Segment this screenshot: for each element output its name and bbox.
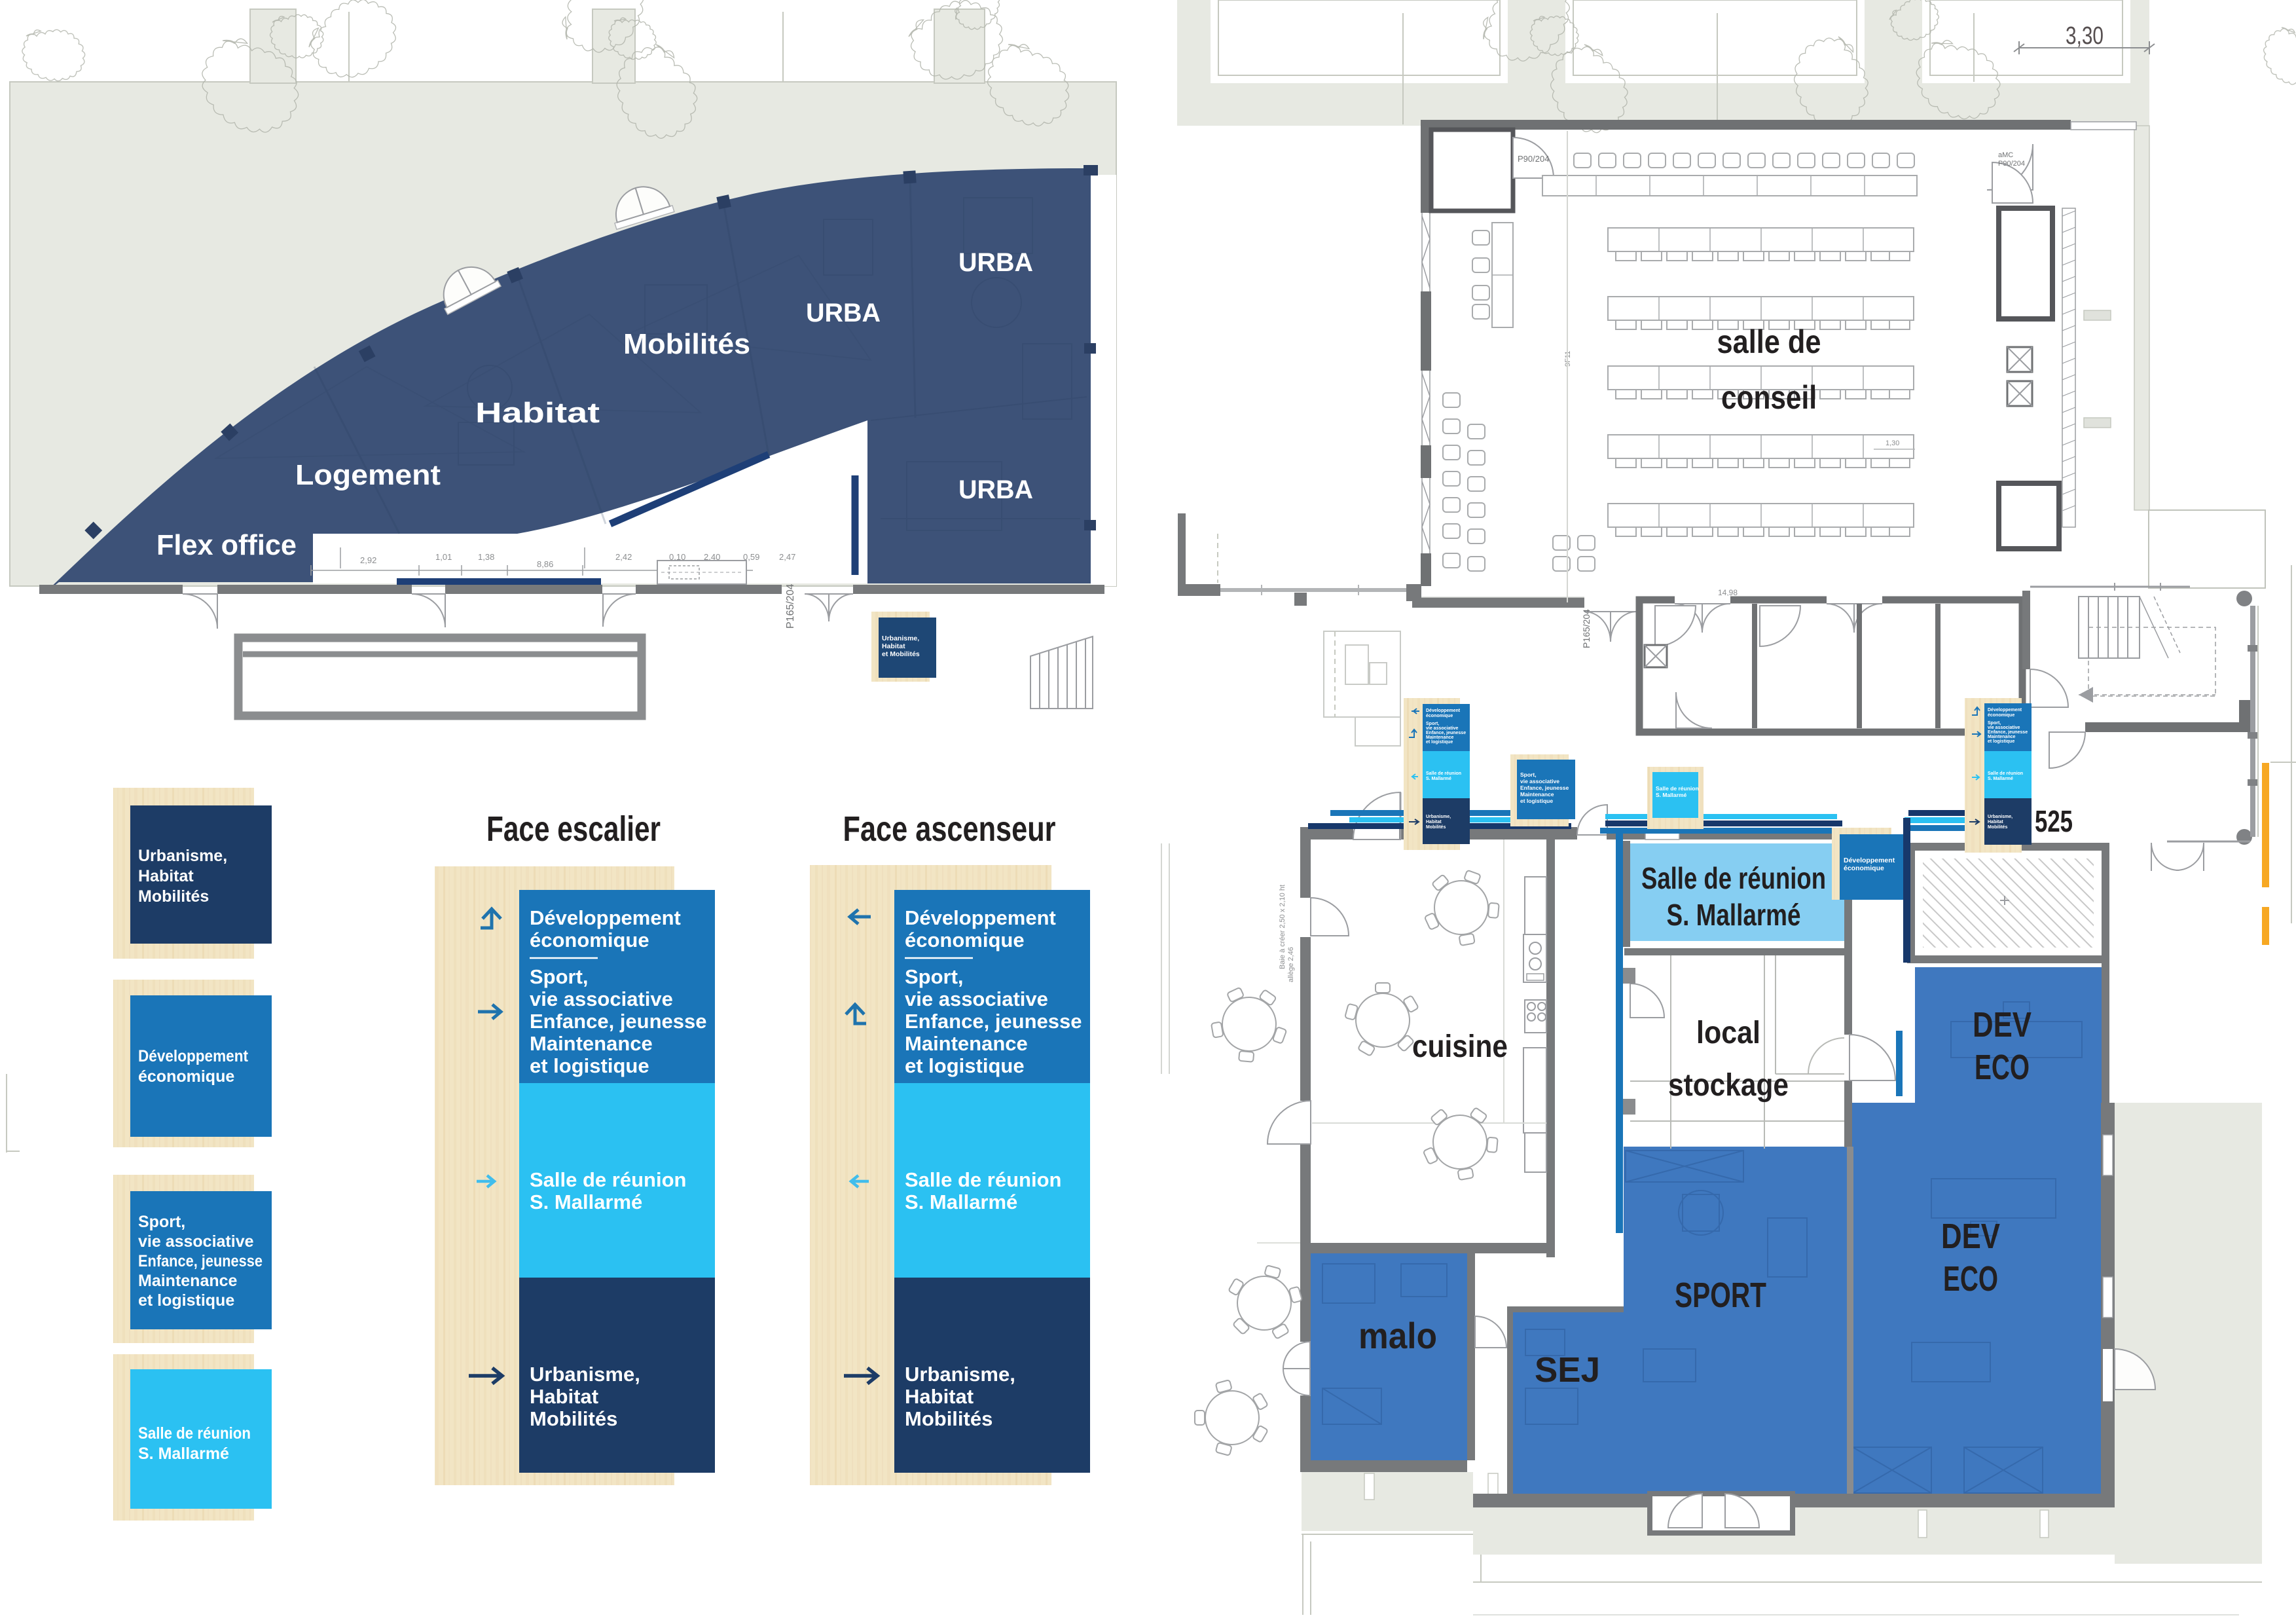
svg-text:économique: économique (138, 1067, 234, 1086)
svg-text:local: local (1696, 1016, 1760, 1050)
svg-text:économique: économique (1844, 864, 1884, 872)
svg-text:vie associative: vie associative (1988, 726, 2020, 730)
svg-text:ECO: ECO (1943, 1259, 1998, 1299)
svg-text:Sport,: Sport, (905, 965, 964, 988)
svg-text:Salle de réunion: Salle de réunion (1988, 771, 2023, 776)
svg-text:Flex office: Flex office (156, 529, 297, 561)
svg-text:et Mobilités: et Mobilités (882, 650, 920, 658)
svg-text:Développement: Développement (1988, 708, 2022, 712)
svg-text:S. Mallarmé: S. Mallarmé (1988, 777, 2013, 781)
svg-text:Enfance, jeunesse: Enfance, jeunesse (905, 1010, 1082, 1033)
svg-text:Sport,: Sport, (530, 965, 589, 988)
svg-text:P90/204: P90/204 (1998, 160, 2025, 168)
svg-text:URBA: URBA (958, 248, 1033, 277)
svg-text:S. Mallarmé: S. Mallarmé (905, 1190, 1017, 1213)
svg-text:Sport,: Sport, (1426, 722, 1439, 726)
svg-text:vie associative: vie associative (138, 1232, 254, 1251)
svg-text:Baie à créer 2,50 x 2,10 ht: Baie à créer 2,50 x 2,10 ht (1279, 885, 1286, 969)
svg-text:Salle de réunion: Salle de réunion (530, 1168, 686, 1191)
svg-text:Habitat: Habitat (1426, 820, 1442, 824)
svg-text:malo: malo (1358, 1315, 1437, 1356)
svg-text:Maintenance: Maintenance (905, 1032, 1028, 1055)
svg-text:Salle de réunion: Salle de réunion (1656, 785, 1699, 792)
svg-text:et logistique: et logistique (1426, 740, 1453, 745)
svg-text:1,30: 1,30 (1886, 439, 1899, 447)
svg-text:P90/204: P90/204 (1518, 154, 1549, 164)
svg-text:525: 525 (2035, 804, 2073, 838)
svg-text:Salle de réunion: Salle de réunion (138, 1424, 251, 1443)
svg-text:2,42: 2,42 (615, 552, 632, 562)
svg-text:Sport,: Sport, (138, 1213, 185, 1231)
svg-text:Développement: Développement (1844, 857, 1895, 864)
svg-text:Habitat: Habitat (475, 397, 600, 429)
svg-text:Habitat: Habitat (882, 642, 905, 650)
svg-text:économique: économique (1988, 713, 2014, 718)
svg-text:Enfance, jeunesse: Enfance, jeunesse (1426, 731, 1466, 735)
svg-text:Maintenance: Maintenance (1988, 735, 2016, 739)
svg-text:et logistique: et logistique (1520, 798, 1553, 804)
svg-text:Mobilités: Mobilités (905, 1407, 993, 1430)
svg-text:P165/204: P165/204 (1581, 609, 1592, 648)
svg-text:Habitat: Habitat (1988, 820, 2003, 824)
svg-text:Développement: Développement (1426, 709, 1461, 713)
svg-text:Développement: Développement (530, 906, 681, 929)
svg-text:Face ascenseur: Face ascenseur (843, 809, 1056, 849)
svg-text:Enfance, jeunesse: Enfance, jeunesse (1520, 784, 1569, 791)
svg-text:Maintenance: Maintenance (1520, 791, 1554, 798)
svg-text:conseil: conseil (1721, 379, 1817, 416)
svg-text:vie associative: vie associative (905, 987, 1048, 1010)
svg-text:et logistique: et logistique (905, 1054, 1025, 1077)
svg-text:S. Mallarmé: S. Mallarmé (1426, 777, 1451, 781)
svg-text:Urbanisme,: Urbanisme, (530, 1363, 640, 1386)
svg-text:Salle de réunion: Salle de réunion (1641, 861, 1826, 895)
svg-text:Mobilités: Mobilités (623, 328, 750, 360)
svg-text:stockage: stockage (1668, 1068, 1789, 1103)
svg-text:Salle de réunion: Salle de réunion (1426, 771, 1461, 776)
svg-text:14,98: 14,98 (1718, 588, 1738, 597)
svg-text:économique: économique (905, 929, 1025, 951)
svg-text:Maintenance: Maintenance (530, 1032, 653, 1055)
svg-text:8,86: 8,86 (537, 559, 553, 569)
svg-text:Sport,: Sport, (1520, 771, 1537, 778)
svg-text:Salle de réunion: Salle de réunion (905, 1168, 1061, 1191)
svg-text:Développement: Développement (138, 1047, 249, 1065)
svg-text:Face escalier: Face escalier (486, 809, 661, 849)
svg-text:3,30: 3,30 (2066, 22, 2104, 50)
svg-text:Mobilités: Mobilités (1988, 825, 2007, 830)
svg-text:2,92: 2,92 (360, 555, 376, 565)
svg-text:1,38: 1,38 (478, 552, 494, 562)
svg-text:Logement: Logement (295, 459, 441, 491)
svg-text:SEJ: SEJ (1535, 1350, 1600, 1390)
svg-text:Maintenance: Maintenance (138, 1272, 238, 1290)
svg-text:Urbanisme,: Urbanisme, (1426, 815, 1451, 819)
svg-text:Habitat: Habitat (530, 1385, 598, 1408)
svg-text:Habitat: Habitat (138, 867, 194, 885)
svg-text:économique: économique (530, 929, 649, 951)
svg-text:S. Mallarmé: S. Mallarmé (1667, 898, 1801, 932)
svg-text:et logistique: et logistique (138, 1291, 234, 1310)
svg-text:Habitat: Habitat (905, 1385, 974, 1408)
svg-text:vie associative: vie associative (530, 987, 673, 1010)
svg-text:Développement: Développement (905, 906, 1056, 929)
svg-text:Urbanisme,: Urbanisme, (905, 1363, 1015, 1386)
svg-text:vie associative: vie associative (1426, 726, 1459, 731)
svg-text:Enfance, jeunesse: Enfance, jeunesse (1988, 730, 2028, 735)
svg-text:Maintenance: Maintenance (1426, 735, 1454, 740)
svg-text:salle de: salle de (1717, 323, 1821, 360)
svg-text:Urbanisme,: Urbanisme, (138, 847, 227, 865)
svg-text:1,01: 1,01 (435, 552, 452, 562)
svg-text:cuisine: cuisine (1412, 1029, 1508, 1064)
svg-text:S. Mallarmé: S. Mallarmé (138, 1445, 229, 1463)
svg-text:URBA: URBA (958, 475, 1033, 504)
svg-text:P165/204: P165/204 (785, 583, 796, 629)
svg-text:S. Mallarmé: S. Mallarmé (530, 1190, 642, 1213)
svg-text:allège 2,46: allège 2,46 (1287, 947, 1295, 982)
svg-text:DEV: DEV (1973, 1005, 2032, 1044)
svg-text:Enfance, jeunesse: Enfance, jeunesse (138, 1252, 263, 1270)
svg-text:SPORT: SPORT (1675, 1276, 1766, 1315)
svg-text:2,47: 2,47 (779, 552, 795, 562)
svg-text:Urbanisme,: Urbanisme, (1988, 815, 2013, 819)
svg-text:ECO: ECO (1975, 1048, 2030, 1087)
svg-text:Urbanisme,: Urbanisme, (882, 635, 919, 642)
svg-text:Sport,: Sport, (1988, 721, 2001, 726)
svg-text:aMC: aMC (1998, 151, 2013, 159)
svg-text:vie associative: vie associative (1520, 778, 1559, 784)
svg-text:DEV: DEV (1941, 1217, 2000, 1256)
svg-text:Mobilités: Mobilités (1426, 825, 1446, 830)
svg-text:économique: économique (1426, 714, 1453, 718)
svg-text:Mobilités: Mobilités (138, 887, 209, 906)
svg-text:et logistique: et logistique (530, 1054, 649, 1077)
svg-text:S. Mallarmé: S. Mallarmé (1656, 792, 1687, 798)
svg-text:et logistique: et logistique (1988, 739, 2014, 744)
svg-text:URBA: URBA (806, 299, 881, 327)
svg-text:Enfance, jeunesse: Enfance, jeunesse (530, 1010, 707, 1033)
svg-text:Mobilités: Mobilités (530, 1407, 617, 1430)
